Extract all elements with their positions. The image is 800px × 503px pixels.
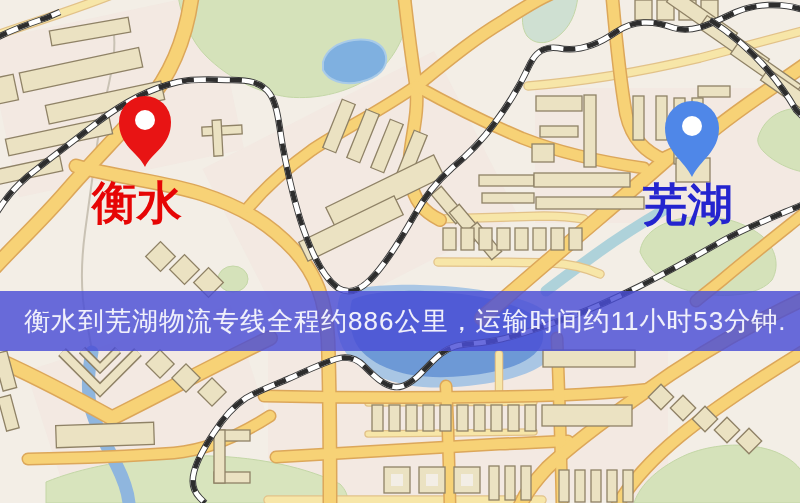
building <box>508 405 519 431</box>
park <box>218 266 248 292</box>
map-screenshot: 衡水 芜湖 衡水到芜湖物流专线全程约886公里，运输时间约11小时53分钟. <box>0 0 800 503</box>
building <box>532 144 554 162</box>
destination-city-label: 芜湖 <box>642 179 733 230</box>
building <box>698 86 730 97</box>
building <box>607 470 617 502</box>
building <box>635 0 652 20</box>
building <box>489 466 499 500</box>
building <box>623 470 633 502</box>
building <box>443 228 456 250</box>
building <box>497 228 510 250</box>
building <box>543 350 635 367</box>
building <box>505 466 515 500</box>
building <box>423 405 434 431</box>
origin-city-label: 衡水 <box>90 177 182 228</box>
building <box>536 197 644 209</box>
building <box>474 405 485 431</box>
building <box>461 228 474 250</box>
destination-pin-hole <box>682 116 702 136</box>
map-canvas[interactable]: 衡水 芜湖 <box>0 0 800 503</box>
road <box>446 386 450 503</box>
building <box>569 228 582 250</box>
building <box>551 228 564 250</box>
route-info-banner: 衡水到芜湖物流专线全程约886公里，运输时间约11小时53分钟. <box>0 291 800 351</box>
building <box>479 228 492 250</box>
building <box>633 96 644 140</box>
building <box>389 405 400 431</box>
building <box>491 405 502 431</box>
building <box>521 466 531 500</box>
building <box>372 405 383 431</box>
building <box>534 173 630 187</box>
building <box>482 193 534 203</box>
building <box>559 470 569 502</box>
building <box>591 470 601 502</box>
building <box>214 430 225 483</box>
building <box>525 405 536 431</box>
building <box>406 405 417 431</box>
origin-pin-hole <box>135 110 155 130</box>
building <box>575 470 585 502</box>
building <box>540 126 578 137</box>
building <box>584 95 596 167</box>
building <box>440 405 451 431</box>
building <box>542 405 632 426</box>
building <box>479 175 534 186</box>
route-info-text: 衡水到芜湖物流专线全程约886公里，运输时间约11小时53分钟. <box>24 304 787 339</box>
building <box>457 405 468 431</box>
building <box>56 422 155 447</box>
building <box>533 228 546 250</box>
building <box>515 228 528 250</box>
building <box>536 96 582 111</box>
building <box>212 120 223 156</box>
